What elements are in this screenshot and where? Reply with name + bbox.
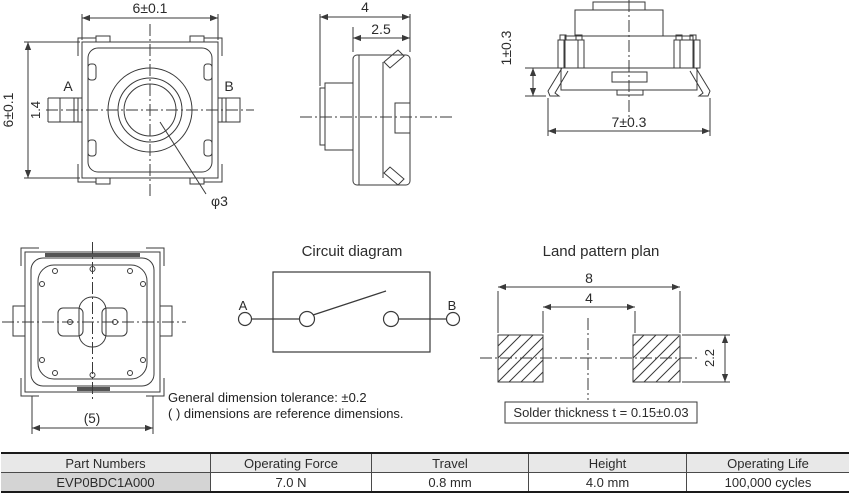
dim-terminal-height bbox=[525, 68, 560, 96]
cell-part-number: EVP0BDC1A000 bbox=[1, 473, 211, 491]
dim-label-body-depth: 2.5 bbox=[371, 21, 391, 37]
datasheet-drawing-page: 6±0.1 6±0.1 1.4 A B φ3 bbox=[0, 0, 851, 493]
cell-travel: 0.8 mm bbox=[372, 473, 529, 491]
front-view-drawing: 1±0.3 7±0.3 bbox=[480, 0, 780, 145]
terminal-a-node bbox=[239, 313, 252, 326]
dim-inner-span bbox=[543, 307, 635, 333]
col-header-travel: Travel bbox=[372, 454, 529, 473]
col-header-part-numbers: Part Numbers bbox=[1, 454, 211, 473]
dim-label-lead-span: 7±0.3 bbox=[612, 114, 647, 130]
side-right-notch bbox=[395, 103, 410, 133]
side-body-outline bbox=[353, 55, 410, 185]
terminal-b-label: B bbox=[224, 78, 233, 94]
front-left-clip bbox=[558, 35, 584, 68]
dim-label-depth: 4 bbox=[361, 0, 369, 15]
spec-table: Part Numbers Operating Force Travel Heig… bbox=[1, 452, 849, 493]
plunger-dia-leader bbox=[160, 122, 206, 194]
cell-operating-life: 100,000 cycles bbox=[687, 473, 849, 491]
dim-label-inner: 4 bbox=[585, 290, 593, 306]
dim-label-terminal-height: 1±0.3 bbox=[498, 30, 514, 65]
note-reference: ( ) dimensions are reference dimensions. bbox=[168, 406, 404, 422]
dim-label-terminal: 1.4 bbox=[28, 101, 43, 119]
dim-label-outer: 8 bbox=[585, 270, 593, 286]
cell-operating-force: 7.0 N bbox=[211, 473, 372, 491]
general-notes: General dimension tolerance: ±0.2 ( ) di… bbox=[168, 390, 404, 422]
contact-left-node bbox=[300, 312, 315, 327]
col-header-operating-life: Operating Life bbox=[687, 454, 849, 473]
dim-label-pad-height: 2.2 bbox=[702, 349, 717, 367]
col-header-height: Height bbox=[529, 454, 687, 473]
dim-label-height: 6±0.1 bbox=[0, 92, 16, 127]
circuit-box bbox=[273, 272, 430, 352]
circuit-label-a: A bbox=[239, 298, 248, 313]
col-header-operating-force: Operating Force bbox=[211, 454, 372, 473]
circuit-label-b: B bbox=[448, 298, 457, 313]
terminal-a-label: A bbox=[63, 78, 73, 94]
cell-height: 4.0 mm bbox=[529, 473, 687, 491]
dim-label-width: 6±0.1 bbox=[133, 0, 168, 16]
centerlines bbox=[46, 24, 254, 196]
dim-label-ref-width: (5) bbox=[84, 411, 101, 426]
side-view-drawing: 4 2.5 bbox=[280, 0, 480, 238]
land-pattern-title: Land pattern plan bbox=[543, 243, 660, 260]
contact-right-node bbox=[384, 312, 399, 327]
dim-depth bbox=[320, 14, 410, 86]
circuit-title: Circuit diagram bbox=[302, 243, 403, 260]
switch-arm bbox=[313, 291, 386, 315]
circuit-diagram: Circuit diagram A B bbox=[220, 240, 480, 365]
plunger-dia-label: φ3 bbox=[211, 193, 228, 209]
land-pattern-plan: Land pattern plan 8 4 2.2 Solder thickne… bbox=[480, 240, 780, 440]
solder-note-text: Solder thickness t = 0.15±0.03 bbox=[513, 405, 688, 420]
front-button bbox=[575, 2, 663, 36]
land-centerlines bbox=[480, 318, 698, 400]
bottom-centerlines bbox=[2, 242, 186, 402]
top-view-drawing: 6±0.1 6±0.1 1.4 A B φ3 bbox=[0, 0, 256, 238]
terminal-b-node bbox=[447, 313, 460, 326]
note-tolerance: General dimension tolerance: ±0.2 bbox=[168, 390, 404, 406]
front-right-clip bbox=[674, 35, 700, 68]
